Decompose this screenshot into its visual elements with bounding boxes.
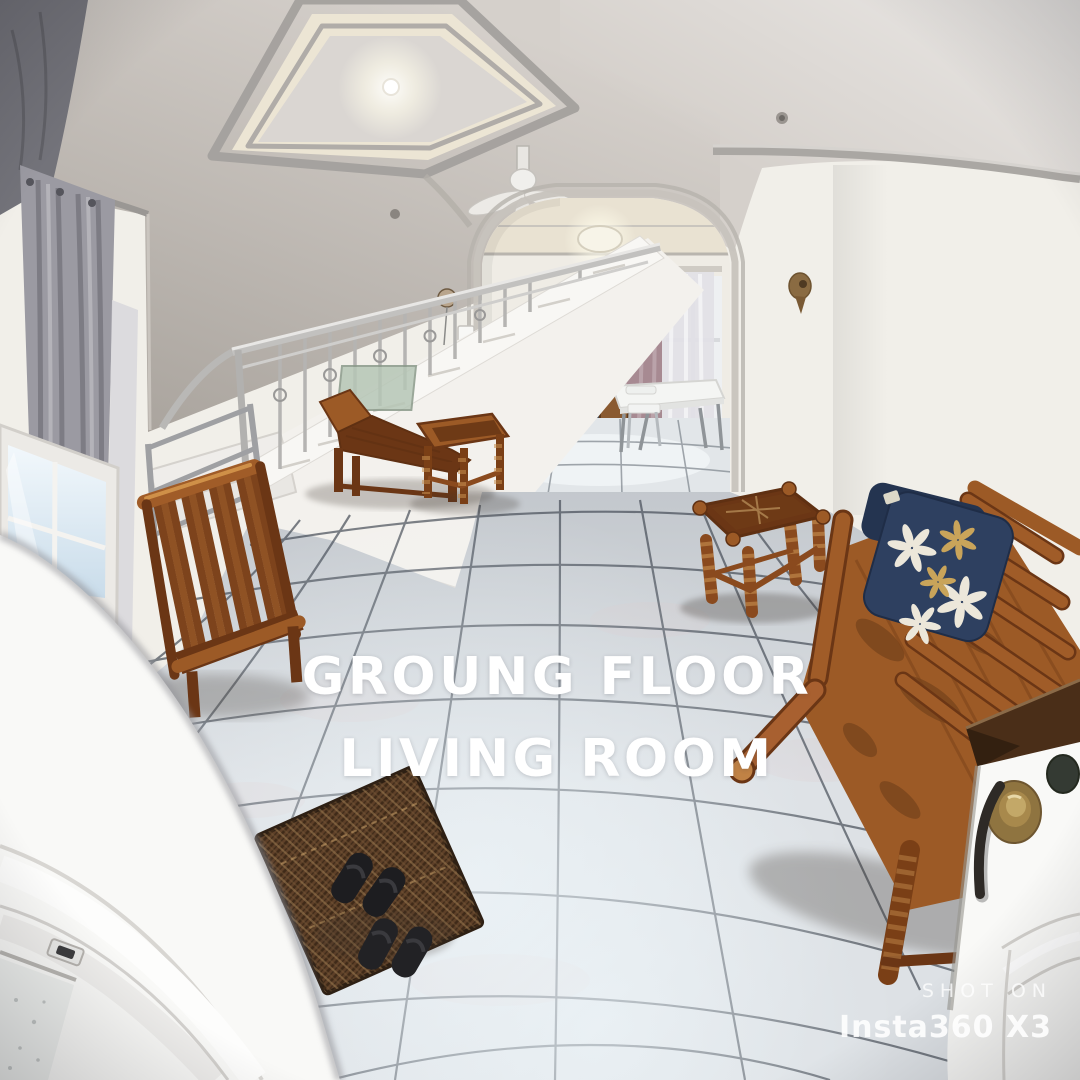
vignette-overlay [0, 0, 1080, 1080]
scene-canvas [0, 0, 1080, 1080]
watermark-camera-model: Insta360 X3 [839, 1010, 1052, 1045]
watermark-shot-on: SHOT ON [839, 983, 1052, 1000]
caption-line-1: GROUNG FLOOR [34, 636, 1080, 718]
caption-line-2: LIVING ROOM [34, 718, 1080, 800]
caption-overlay: GROUNG FLOOR LIVING ROOM [34, 636, 1080, 800]
photo-living-room: GROUNG FLOOR LIVING ROOM SHOT ON Insta36… [0, 0, 1080, 1080]
camera-watermark: SHOT ON Insta360 X3 [839, 983, 1052, 1045]
